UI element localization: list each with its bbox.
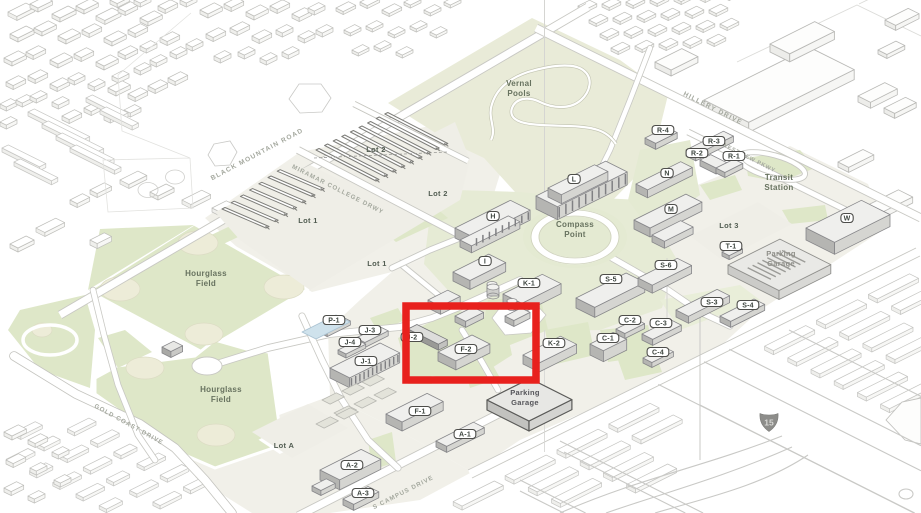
svg-text:I: I <box>484 259 486 266</box>
svg-text:A-2: A-2 <box>346 463 358 470</box>
svg-text:C-2: C-2 <box>624 318 636 325</box>
svg-text:15: 15 <box>764 418 774 428</box>
svg-text:Lot 1: Lot 1 <box>367 259 386 268</box>
svg-text:Lot 3: Lot 3 <box>719 221 738 230</box>
svg-text:N: N <box>664 171 669 178</box>
svg-text:P-1: P-1 <box>328 318 340 325</box>
svg-text:F-2: F-2 <box>460 347 471 354</box>
svg-text:J-4: J-4 <box>345 340 356 347</box>
svg-text:K-1: K-1 <box>523 281 535 288</box>
svg-text:Lot 1: Lot 1 <box>298 216 317 225</box>
svg-text:R-4: R-4 <box>657 128 669 135</box>
svg-text:T-1: T-1 <box>726 244 737 251</box>
svg-text:VernalPools: VernalPools <box>506 79 532 98</box>
svg-text:S-6: S-6 <box>660 263 672 270</box>
svg-text:F-1: F-1 <box>414 409 425 416</box>
svg-text:R-1: R-1 <box>728 154 740 161</box>
svg-text:Lot 2: Lot 2 <box>366 145 385 154</box>
svg-text:H: H <box>490 214 495 221</box>
svg-text:S-5: S-5 <box>605 277 617 284</box>
svg-text:R-2: R-2 <box>691 151 703 158</box>
svg-text:W: W <box>844 216 851 223</box>
svg-text:ParkingGarage: ParkingGarage <box>510 388 540 407</box>
svg-text:A-3: A-3 <box>357 491 369 498</box>
svg-text:M: M <box>668 207 674 214</box>
svg-text:K-2: K-2 <box>548 341 560 348</box>
svg-text:Lot A: Lot A <box>274 441 295 450</box>
svg-text:S-3: S-3 <box>706 300 718 307</box>
svg-text:Lot 2: Lot 2 <box>428 189 447 198</box>
svg-text:L: L <box>572 177 577 184</box>
svg-text:C-1: C-1 <box>602 336 614 343</box>
svg-text:TransitStation: TransitStation <box>764 173 793 192</box>
svg-text:J-1: J-1 <box>361 359 372 366</box>
svg-text:A-1: A-1 <box>459 432 471 439</box>
svg-text:R-3: R-3 <box>708 139 720 146</box>
svg-text:C-3: C-3 <box>655 321 667 328</box>
svg-text:ParkingGarage: ParkingGarage <box>766 249 796 268</box>
svg-text:S-4: S-4 <box>742 303 754 310</box>
svg-text:J-3: J-3 <box>365 328 376 335</box>
svg-text:C-4: C-4 <box>652 350 664 357</box>
